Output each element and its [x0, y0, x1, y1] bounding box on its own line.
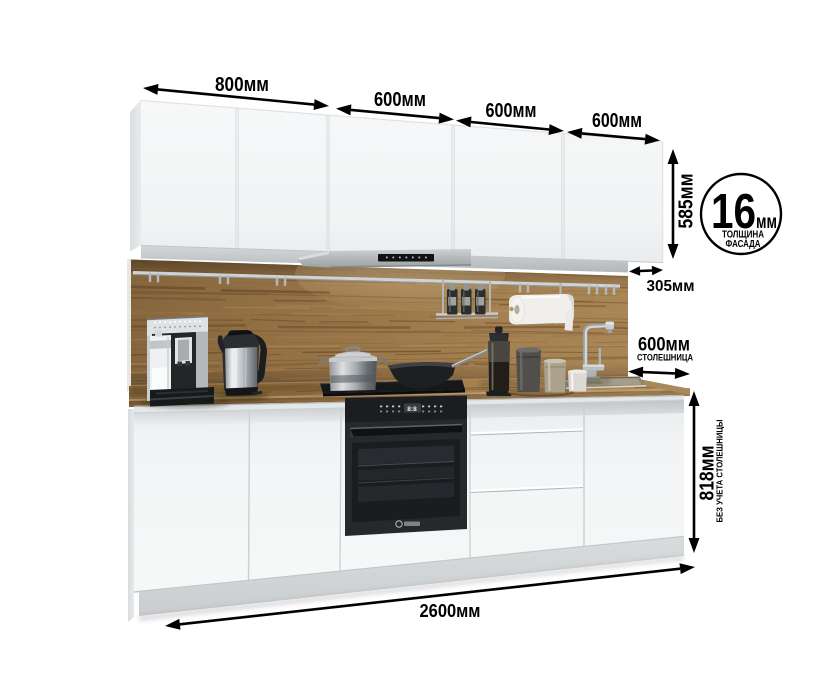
svg-text:600мм: 600мм [374, 89, 426, 111]
svg-text:600мм: 600мм [486, 100, 537, 122]
svg-text:СТОЛЕШНИЦА: СТОЛЕШНИЦА [637, 353, 693, 363]
svg-text:800мм: 800мм [215, 73, 269, 96]
svg-text:ФАСАДА: ФАСАДА [726, 239, 761, 250]
svg-text:2600мм: 2600мм [420, 601, 481, 621]
svg-text:8:8: 8:8 [407, 406, 417, 413]
svg-text:600мм: 600мм [592, 110, 642, 132]
svg-text:БЕЗ УЧЕТА СТОЛЕШНИЦЫ: БЕЗ УЧЕТА СТОЛЕШНИЦЫ [715, 420, 725, 523]
svg-text:585мм: 585мм [676, 174, 698, 229]
svg-text:305мм: 305мм [647, 278, 695, 295]
